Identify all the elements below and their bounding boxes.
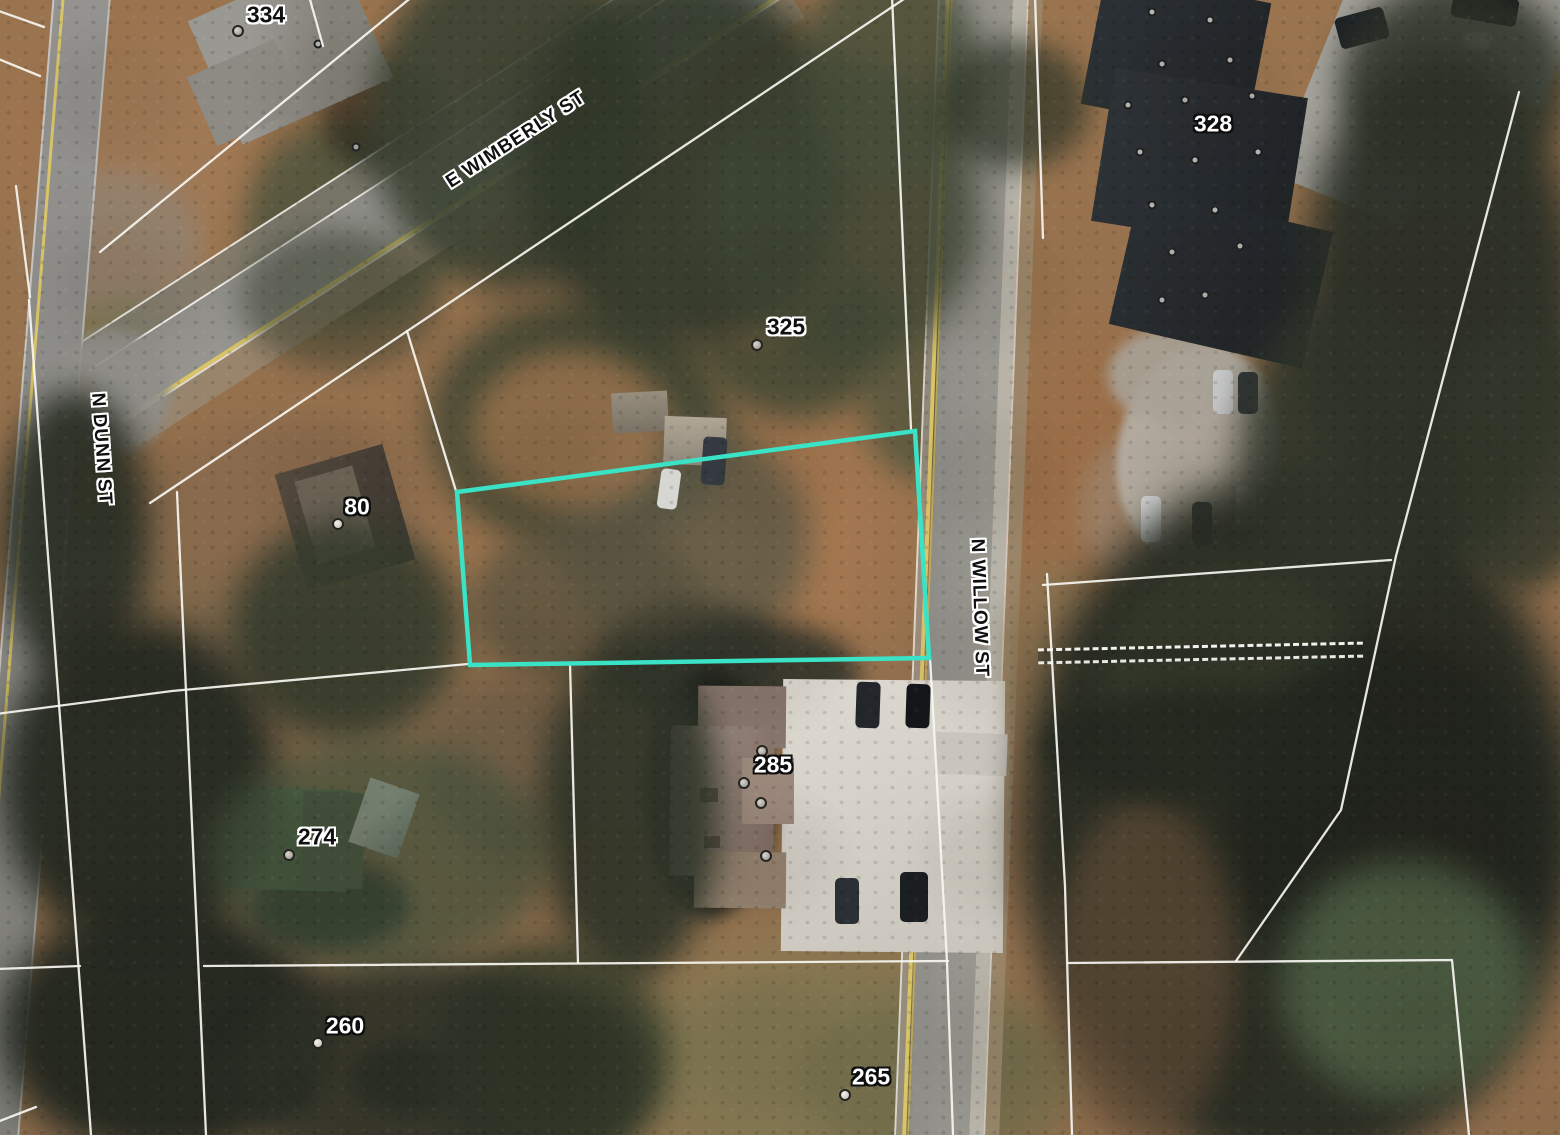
address-marker-274 (283, 849, 295, 861)
address-label-265: 265 (852, 1064, 890, 1091)
address-marker-325 (751, 339, 763, 351)
address-label-80: 80 (344, 494, 370, 521)
address-marker-334 (232, 25, 244, 37)
address-marker-260 (312, 1037, 324, 1049)
address-marker-285-c (755, 797, 767, 809)
address-label-328: 328 (1194, 111, 1232, 138)
address-marker-265 (839, 1089, 851, 1101)
driveway-apron-285 (934, 732, 1007, 776)
address-label-325: 325 (767, 314, 805, 341)
address-marker-285-b (738, 777, 750, 789)
address-label-274: 274 (298, 824, 336, 851)
address-label-334: 334 (247, 2, 285, 29)
address-label-260: 260 (326, 1013, 364, 1040)
address-label-285: 285 (754, 752, 792, 779)
address-marker-80 (332, 518, 344, 530)
aerial-map-canvas[interactable]: E WIMBERLY ST N DUNN ST N WILLOW ST 334 … (0, 0, 1560, 1135)
address-marker-285-d (760, 850, 772, 862)
parking-lot-285 (781, 679, 1005, 953)
